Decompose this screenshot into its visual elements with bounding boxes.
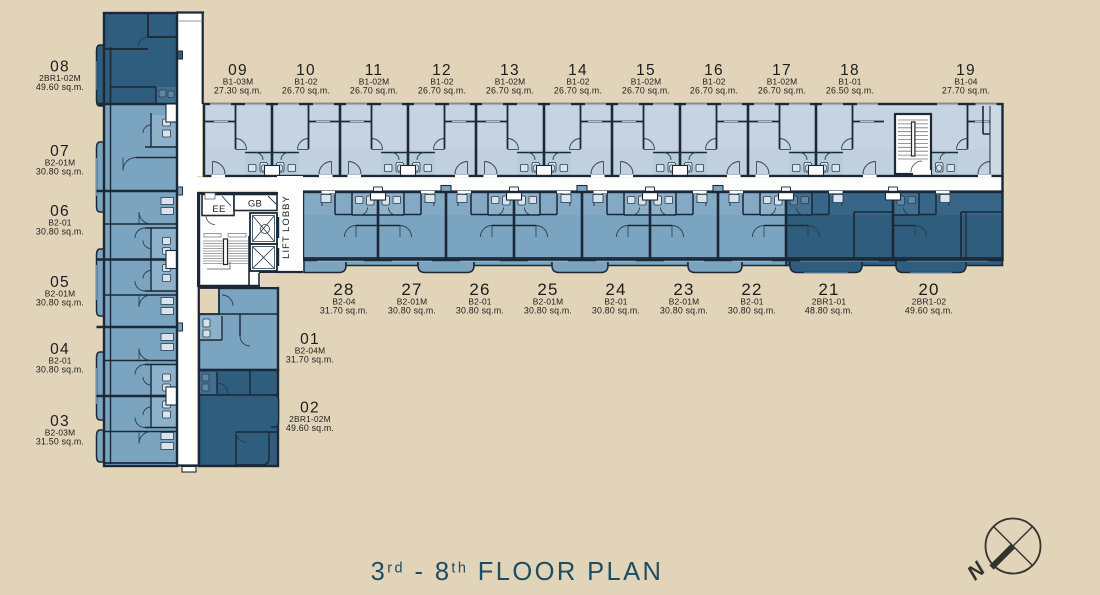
svg-text:26.70 sq.m.: 26.70 sq.m. [282,86,330,96]
svg-text:30.80 sq.m.: 30.80 sq.m. [388,306,436,316]
svg-text:LIFT LOBBY: LIFT LOBBY [281,195,292,259]
svg-text:26.50 sq.m.: 26.50 sq.m. [826,86,874,96]
svg-text:49.60 sq.m.: 49.60 sq.m. [286,423,334,433]
svg-text:26.70 sq.m.: 26.70 sq.m. [758,86,806,96]
svg-text:26.70 sq.m.: 26.70 sq.m. [350,86,398,96]
svg-text:30.80 sq.m.: 30.80 sq.m. [524,306,572,316]
svg-text:26.70 sq.m.: 26.70 sq.m. [486,86,534,96]
svg-text:30.80 sq.m.: 30.80 sq.m. [36,227,84,237]
svg-text:26.70 sq.m.: 26.70 sq.m. [622,86,670,96]
svg-text:48.80 sq.m.: 48.80 sq.m. [805,306,853,316]
svg-text:31.50 sq.m.: 31.50 sq.m. [36,437,84,447]
svg-text:31.70 sq.m.: 31.70 sq.m. [320,306,368,316]
svg-text:30.80 sq.m.: 30.80 sq.m. [36,167,84,177]
svg-text:30.80 sq.m.: 30.80 sq.m. [660,306,708,316]
svg-text:27.70 sq.m.: 27.70 sq.m. [942,86,990,96]
svg-text:30.80 sq.m.: 30.80 sq.m. [36,298,84,308]
svg-text:30.80 sq.m.: 30.80 sq.m. [36,365,84,375]
svg-text:30.80 sq.m.: 30.80 sq.m. [592,306,640,316]
svg-text:GB: GB [248,199,262,210]
svg-text:26.70 sq.m.: 26.70 sq.m. [554,86,602,96]
svg-text:26.70 sq.m.: 26.70 sq.m. [690,86,738,96]
svg-text:30.80 sq.m.: 30.80 sq.m. [728,306,776,316]
svg-text:3rd - 8th FLOOR PLAN: 3rd - 8th FLOOR PLAN [371,558,664,586]
svg-text:EE: EE [212,204,225,215]
svg-text:27.30 sq.m.: 27.30 sq.m. [214,86,262,96]
svg-text:49.60 sq.m.: 49.60 sq.m. [36,82,84,92]
svg-text:26.70 sq.m.: 26.70 sq.m. [418,86,466,96]
svg-text:31.70 sq.m.: 31.70 sq.m. [286,355,334,365]
svg-text:30.80 sq.m.: 30.80 sq.m. [456,306,504,316]
svg-text:49.60 sq.m.: 49.60 sq.m. [905,306,953,316]
